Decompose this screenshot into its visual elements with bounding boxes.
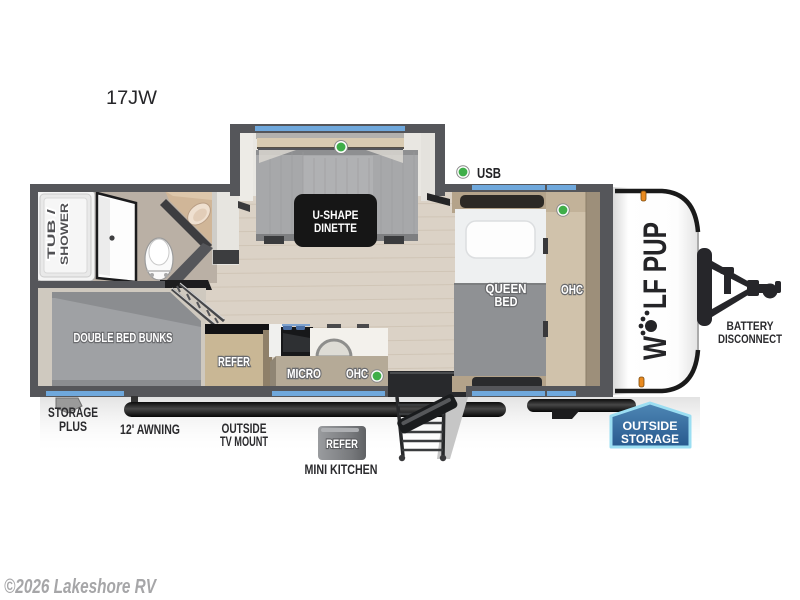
svg-text:OHC: OHC — [561, 283, 583, 297]
svg-text:DINETTE: DINETTE — [314, 223, 357, 235]
svg-text:12' AWNING: 12' AWNING — [120, 422, 180, 437]
svg-text:MINI KITCHEN: MINI KITCHEN — [305, 462, 378, 477]
svg-text:W: W — [637, 335, 673, 360]
svg-text:BATTERY: BATTERY — [727, 321, 774, 333]
svg-text:PLUS: PLUS — [59, 419, 87, 434]
svg-text:STORAGE: STORAGE — [621, 432, 679, 446]
svg-text:BED: BED — [495, 295, 518, 309]
svg-text:©2026 Lakeshore RV: ©2026 Lakeshore RV — [4, 576, 157, 598]
svg-text:USB: USB — [477, 166, 501, 182]
svg-text:REFER: REFER — [218, 355, 250, 369]
svg-text:17JW: 17JW — [106, 87, 158, 109]
svg-text:SHOWER: SHOWER — [59, 203, 71, 265]
svg-text:OUTSIDE: OUTSIDE — [623, 419, 678, 433]
svg-text:LF PUP: LF PUP — [637, 222, 673, 309]
svg-text:TUB /: TUB / — [46, 209, 58, 259]
svg-text:U-SHAPE: U-SHAPE — [313, 210, 359, 222]
svg-text:OHC: OHC — [346, 367, 368, 381]
svg-text:MICRO: MICRO — [287, 367, 321, 381]
svg-text:STORAGE: STORAGE — [48, 405, 98, 420]
svg-text:DOUBLE BED BUNKS: DOUBLE BED BUNKS — [74, 330, 173, 345]
svg-text:DISCONNECT: DISCONNECT — [718, 334, 782, 346]
svg-text:TV MOUNT: TV MOUNT — [220, 434, 269, 449]
svg-text:REFER: REFER — [326, 437, 358, 451]
svg-text:QUEEN: QUEEN — [486, 282, 527, 296]
